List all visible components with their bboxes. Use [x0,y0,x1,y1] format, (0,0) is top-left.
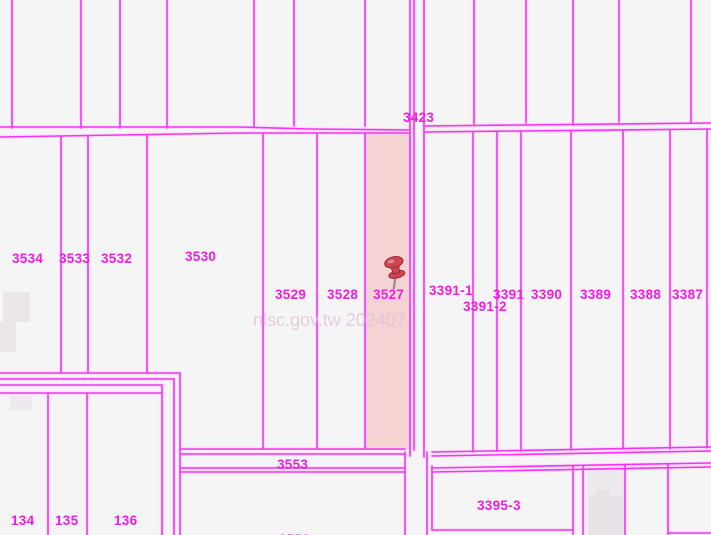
parcel-label-134: 134 [11,513,35,528]
parcel-label-3395-3: 3395-3 [477,498,521,513]
parcel-label-135: 135 [55,513,79,528]
parcel-label-3389: 3389 [580,287,611,302]
parcel-label-3553: 3553 [277,457,308,472]
parcel-label-3534: 3534 [12,251,43,266]
parcel-label-3530: 3530 [185,249,216,264]
parcel-label-3391-1: 3391-1 [429,283,473,298]
watermark: nlsc.gov.tw 202407 [253,310,406,330]
parcel-label-3532: 3532 [101,251,132,266]
building-lower [588,490,624,535]
parcel-label-3391: 3391 [493,287,524,302]
parcel-label-3387: 3387 [672,287,703,302]
cadastral-map[interactable]: nlsc.gov.tw 202407 3423 3534 3533 3532 3… [0,0,711,535]
parcel-label-3388: 3388 [630,287,661,302]
parcel-label-3527: 3527 [373,287,404,302]
parcel-label-3533: 3533 [59,251,90,266]
parcel-label-3529: 3529 [275,287,306,302]
parcel-label-3423: 3423 [403,110,434,125]
parcel-label-136: 136 [114,513,138,528]
parcel-label-3528: 3528 [327,287,358,302]
parcel-label-3390: 3390 [531,287,562,302]
